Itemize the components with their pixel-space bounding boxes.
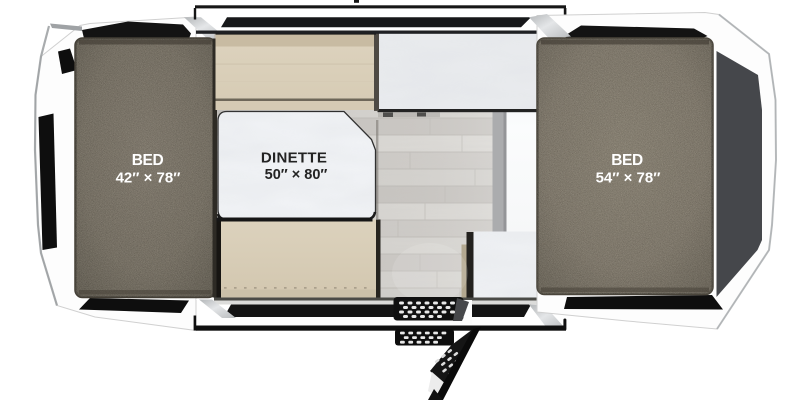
svg-text:54″ × 78″: 54″ × 78″	[596, 170, 661, 187]
svg-text:BED: BED	[132, 152, 164, 169]
svg-text:42″ × 78″: 42″ × 78″	[116, 170, 181, 187]
svg-text:BED: BED	[611, 152, 643, 169]
svg-text:50″ × 80″: 50″ × 80″	[265, 167, 328, 183]
svg-text:DINETTE: DINETTE	[261, 150, 327, 167]
